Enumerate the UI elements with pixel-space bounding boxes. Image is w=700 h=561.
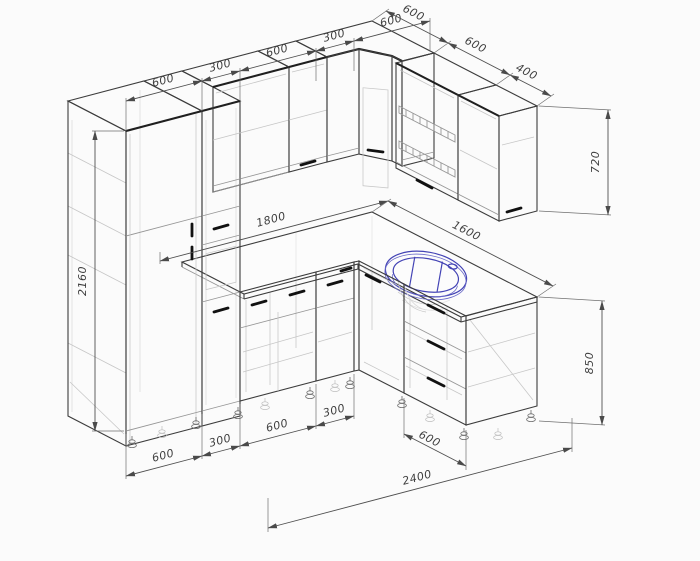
dimension-label-top-1: 600 [151, 71, 176, 89]
dimension-label-1800: 1800 [255, 209, 287, 229]
dimension-chain-top-left: 600 300 600 300 600 [126, 11, 430, 131]
dimension-label-720: 720 [589, 151, 602, 174]
dimension-label-600-right: 600 [417, 428, 443, 450]
dimension-chain-top-right: 600 600 400 [372, 2, 554, 106]
wall-cabinet-300 [258, 41, 327, 172]
dimension-tall-height: 2160 [76, 131, 124, 431]
right-wall-cabinet-600 [396, 53, 496, 200]
dimension-label-850: 850 [583, 352, 596, 375]
dimension-wall-height: 720 [539, 106, 611, 215]
dimension-label-bottom-1: 600 [151, 446, 176, 464]
corner-wall-cabinet [296, 21, 434, 188]
right-end-panel [466, 297, 537, 425]
dimension-label-top-3: 600 [265, 41, 290, 59]
dimension-label-bottom-2: 300 [208, 431, 233, 449]
drawing-canvas: 600 300 600 300 600 600 600 400 720 2160… [0, 0, 700, 561]
dimension-label-bottom-3: 600 [265, 416, 290, 434]
dimension-label-bottom-4: 300 [322, 401, 347, 419]
dimension-label-1600: 1600 [450, 218, 483, 243]
dimension-label-right-3: 400 [514, 61, 540, 83]
right-wall-cabinet-400 [458, 85, 537, 221]
dimension-label-top-5: 600 [379, 11, 404, 29]
dimension-label-top-2: 300 [208, 56, 233, 74]
dimension-label-2400: 2400 [401, 467, 433, 487]
dish-rack-upper [399, 106, 455, 142]
dimension-base-height: 850 [539, 297, 605, 425]
dimension-label-2160: 2160 [76, 266, 89, 296]
base-cabinet-300 [316, 262, 354, 381]
dimension-label-top-4: 300 [322, 26, 347, 44]
kitchen-technical-drawing: 600 300 600 300 600 600 600 400 720 2160… [0, 0, 700, 561]
